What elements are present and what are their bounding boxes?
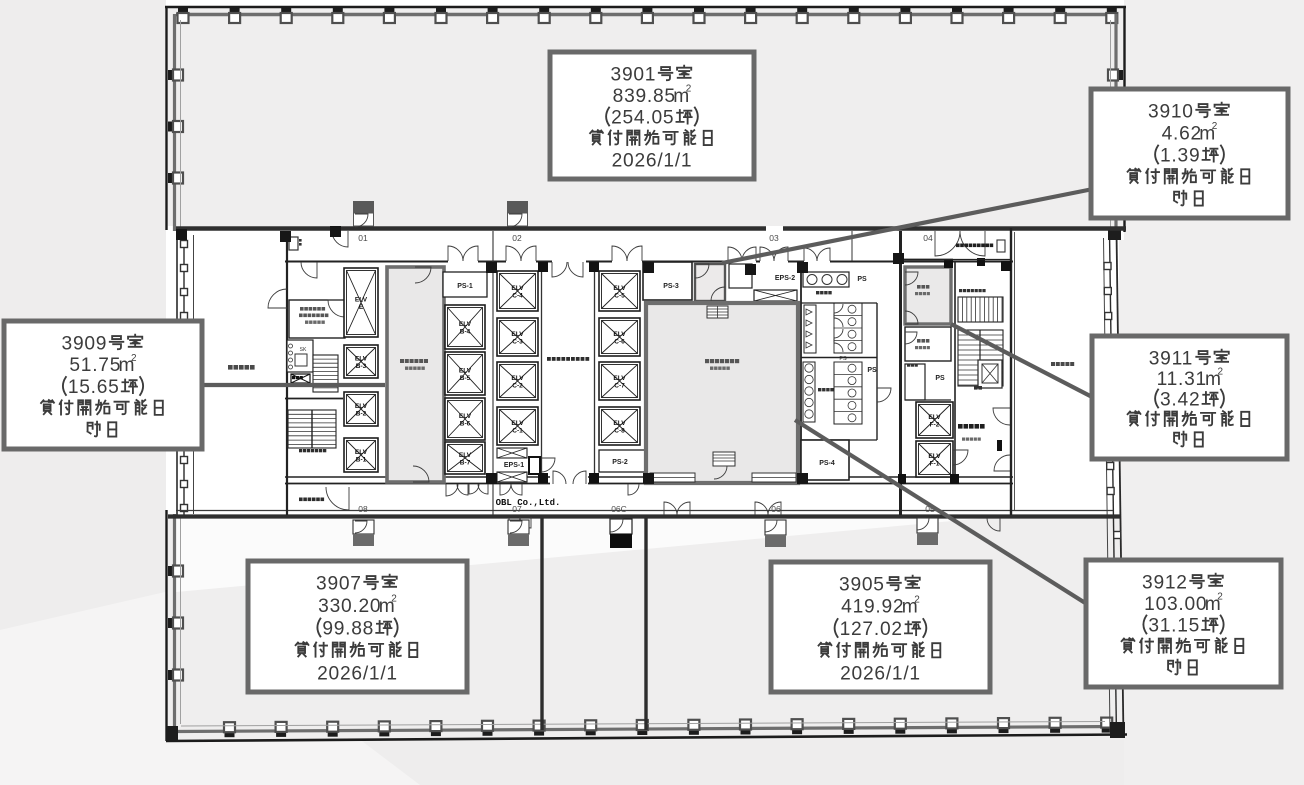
svg-text:08: 08 bbox=[358, 504, 368, 514]
svg-text:ELV: ELV bbox=[355, 356, 368, 363]
svg-text:F-1: F-1 bbox=[930, 461, 940, 468]
svg-text:03: 03 bbox=[769, 233, 779, 243]
svg-text:C-3: C-3 bbox=[512, 339, 523, 346]
svg-text:2: 2 bbox=[914, 594, 920, 605]
svg-text:31.15: 31.15 bbox=[1148, 615, 1200, 636]
svg-text:ELV: ELV bbox=[355, 297, 368, 304]
svg-text:B-3: B-3 bbox=[356, 363, 367, 370]
svg-text:51.75: 51.75 bbox=[69, 355, 121, 376]
svg-text:B-2: B-2 bbox=[356, 411, 367, 418]
svg-text:254.05: 254.05 bbox=[611, 107, 674, 128]
svg-text:EPS-2: EPS-2 bbox=[775, 275, 795, 282]
svg-text:PS-1: PS-1 bbox=[457, 283, 473, 290]
svg-text:2: 2 bbox=[391, 594, 397, 605]
svg-text:11.31: 11.31 bbox=[1157, 369, 1207, 390]
svg-text:2: 2 bbox=[1217, 367, 1223, 378]
svg-text:419.92: 419.92 bbox=[841, 597, 904, 618]
svg-text:B-5: B-5 bbox=[460, 375, 471, 382]
svg-text:B-6: B-6 bbox=[460, 421, 471, 428]
svg-text:ELV: ELV bbox=[459, 413, 472, 420]
svg-text:ELV: ELV bbox=[459, 452, 472, 459]
svg-text:C-5: C-5 bbox=[614, 293, 625, 300]
svg-text:C-2: C-2 bbox=[512, 383, 523, 390]
svg-text:3909: 3909 bbox=[62, 333, 108, 354]
svg-text:C-7: C-7 bbox=[614, 383, 625, 390]
svg-text:103.00: 103.00 bbox=[1144, 594, 1207, 615]
svg-text:02: 02 bbox=[512, 233, 522, 243]
svg-text:4.62: 4.62 bbox=[1162, 123, 1202, 144]
svg-text:SK: SK bbox=[300, 347, 307, 353]
svg-text:ELV: ELV bbox=[355, 449, 368, 456]
svg-text:3905: 3905 bbox=[839, 574, 885, 595]
svg-text:PS: PS bbox=[839, 356, 847, 362]
svg-text:330.20: 330.20 bbox=[318, 596, 381, 617]
svg-text:B-7: B-7 bbox=[460, 460, 471, 467]
svg-text:PS-4: PS-4 bbox=[819, 460, 835, 467]
svg-text:3911: 3911 bbox=[1149, 348, 1193, 369]
svg-text:C-6: C-6 bbox=[614, 339, 625, 346]
svg-text:PS-2: PS-2 bbox=[612, 459, 628, 466]
svg-text:2026/1/1: 2026/1/1 bbox=[840, 663, 921, 684]
svg-text:OBL Co.,Ltd.: OBL Co.,Ltd. bbox=[496, 498, 561, 508]
svg-text:ELV: ELV bbox=[613, 331, 626, 338]
svg-text:ELV: ELV bbox=[613, 285, 626, 292]
svg-text:2026/1/1: 2026/1/1 bbox=[612, 150, 693, 171]
svg-text:839.85: 839.85 bbox=[613, 86, 676, 107]
svg-text:PS: PS bbox=[867, 367, 877, 374]
svg-text:2: 2 bbox=[1217, 592, 1223, 603]
svg-text:ELV: ELV bbox=[511, 420, 524, 427]
svg-text:99.88: 99.88 bbox=[322, 618, 374, 639]
svg-text:15.65: 15.65 bbox=[68, 377, 120, 398]
svg-text:1.39: 1.39 bbox=[1160, 145, 1200, 166]
svg-text:06C: 06C bbox=[611, 504, 627, 514]
svg-text:ELV: ELV bbox=[511, 375, 524, 382]
svg-text:3.42: 3.42 bbox=[1160, 389, 1200, 410]
svg-text:C-4: C-4 bbox=[512, 293, 523, 300]
svg-text:ELV: ELV bbox=[511, 285, 524, 292]
svg-text:ELV: ELV bbox=[928, 414, 941, 421]
svg-text:B-1: B-1 bbox=[356, 457, 367, 464]
svg-text:E: E bbox=[359, 304, 364, 311]
svg-text:2026/1/1: 2026/1/1 bbox=[317, 663, 398, 684]
svg-text:3907: 3907 bbox=[316, 573, 362, 594]
svg-text:EPS-1: EPS-1 bbox=[504, 462, 524, 469]
svg-text:ELV: ELV bbox=[613, 420, 626, 427]
svg-text:PS: PS bbox=[935, 375, 945, 382]
svg-text:ELV: ELV bbox=[355, 403, 368, 410]
svg-text:2: 2 bbox=[1212, 121, 1218, 132]
svg-text:04: 04 bbox=[923, 233, 933, 243]
svg-text:ELV: ELV bbox=[459, 321, 472, 328]
svg-text:ELV: ELV bbox=[928, 453, 941, 460]
svg-text:F-2: F-2 bbox=[930, 422, 940, 429]
svg-text:3901: 3901 bbox=[611, 64, 657, 85]
svg-text:01: 01 bbox=[358, 233, 368, 243]
svg-text:PS-3: PS-3 bbox=[663, 283, 679, 290]
svg-text:C-8: C-8 bbox=[614, 428, 625, 435]
svg-text:2: 2 bbox=[131, 353, 137, 364]
svg-text:3910: 3910 bbox=[1148, 101, 1194, 122]
svg-text:2: 2 bbox=[686, 84, 692, 95]
svg-text:3912: 3912 bbox=[1142, 572, 1188, 593]
svg-text:ELV: ELV bbox=[613, 375, 626, 382]
svg-text:ELV: ELV bbox=[511, 331, 524, 338]
svg-text:C-1: C-1 bbox=[512, 428, 523, 435]
svg-text:PS: PS bbox=[857, 276, 867, 283]
svg-text:ELV: ELV bbox=[459, 368, 472, 375]
svg-text:127.02: 127.02 bbox=[840, 619, 903, 640]
svg-text:B-4: B-4 bbox=[460, 329, 471, 336]
